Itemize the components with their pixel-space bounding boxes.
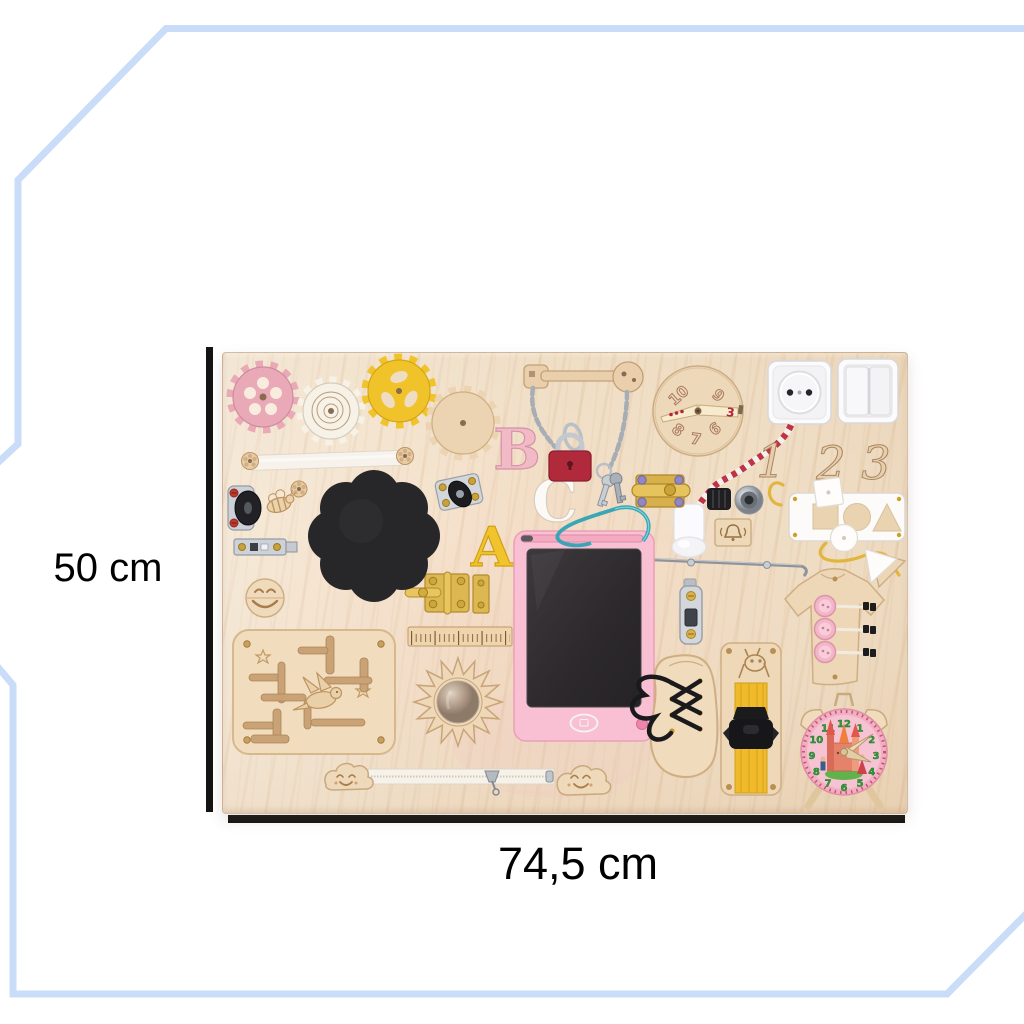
keys-on-ring: [594, 464, 626, 508]
width-dimension-line: [228, 815, 905, 823]
cloud-left: [325, 764, 373, 790]
push-light: [672, 504, 706, 557]
svg-text:6: 6: [841, 783, 848, 794]
width-dimension-label: 74,5 cm: [428, 838, 728, 890]
caster-wheel-left: [228, 486, 261, 530]
clock-handle: [835, 694, 853, 706]
doorbell-plate: [715, 519, 751, 546]
light-switch: [838, 359, 898, 423]
black-flower-chalkboard: [308, 470, 440, 602]
smiley-disc: [246, 579, 284, 617]
maze-board: [233, 630, 395, 754]
door-lock-plate: [680, 579, 702, 644]
svg-text:5: 5: [857, 779, 864, 790]
svg-text:8: 8: [813, 767, 820, 778]
brass-barrel-bolt: [632, 475, 690, 507]
product-dimension-image: 50 cm 74,5 cm: [0, 0, 1024, 1024]
number-spinner-dial: 10 9 8 7 6 3: [653, 366, 744, 456]
buckle-strap-board: [721, 643, 781, 795]
height-dimension-label: 50 cm: [18, 546, 198, 591]
svg-text:10: 10: [809, 735, 823, 746]
white-triangle-piece: [865, 549, 905, 587]
cutout-number-3: 3: [861, 436, 890, 490]
clock-leg-right: [869, 789, 880, 806]
tshirt-buttoning-board: [785, 569, 884, 685]
cutout-number-1: 1: [756, 434, 785, 488]
red-padlock: [549, 435, 591, 481]
height-dimension-line: [206, 347, 213, 812]
clock-leg-left: [808, 789, 819, 806]
svg-text:4: 4: [868, 767, 875, 778]
yellow-gear: [363, 355, 435, 427]
stylus: [521, 535, 643, 542]
sun-mirror: [414, 658, 502, 746]
power-socket: [768, 361, 831, 424]
svg-text:3: 3: [873, 751, 880, 762]
letter-a: A: [470, 515, 514, 579]
swivel-caster: [434, 473, 483, 511]
spiral-gear: [296, 376, 366, 446]
wooden-ruler: [408, 627, 512, 646]
hook-latch: [631, 555, 806, 576]
flower-button-right: [397, 448, 414, 465]
small-hinge: [473, 575, 489, 613]
flower-button-left: [242, 453, 259, 470]
pink-gear: [231, 365, 295, 429]
slide-latch: [234, 539, 297, 555]
ribbon-with-flowers: [247, 450, 407, 471]
svg-text:7: 7: [825, 779, 832, 790]
svg-text:9: 9: [809, 751, 816, 762]
busy-board: B C A 10 9 8: [222, 352, 908, 814]
alarm-clock: 12 1 2 3 4 5 6 7 8 9 10 11: [801, 694, 887, 806]
spinning-light: [707, 486, 763, 514]
